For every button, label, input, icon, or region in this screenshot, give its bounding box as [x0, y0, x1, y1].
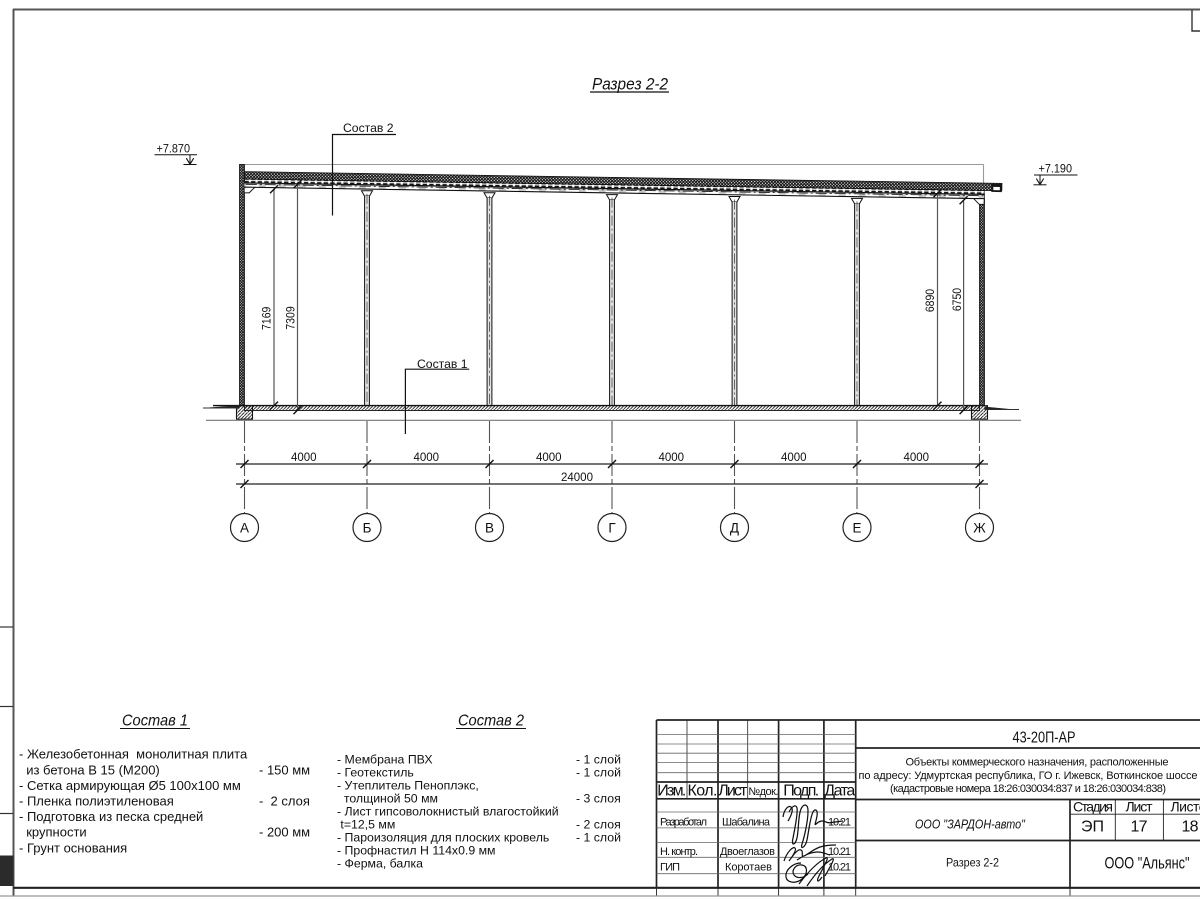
- svg-text:Е: Е: [852, 521, 861, 536]
- svg-text:крупности: крупности: [19, 825, 87, 840]
- svg-text:- Железобетонная монолитная п: - Железобетонная монолитная плита: [19, 747, 248, 762]
- svg-text:- Геотекстиль: - Геотекстиль: [337, 765, 414, 779]
- svg-text:Листов: Листов: [1171, 799, 1200, 815]
- svg-text:Состав 2: Состав 2: [458, 713, 524, 730]
- svg-text:(кадастровые номера 18:26:0300: (кадастровые номера 18:26:030034:837 и 1…: [890, 783, 1166, 795]
- svg-text:Г: Г: [608, 521, 616, 536]
- svg-text:- 150 мм: - 150 мм: [259, 762, 310, 777]
- svg-text:- 1 слой: - 1 слой: [576, 830, 621, 844]
- svg-text:+7.190: +7.190: [1039, 164, 1073, 176]
- svg-text:Стадия: Стадия: [1073, 799, 1113, 815]
- svg-text:Изм.: Изм.: [657, 783, 686, 800]
- svg-text:- Сетка армирующая Ø5 100х100: - Сетка армирующая Ø5 100х100 мм: [19, 778, 241, 793]
- svg-text:А: А: [240, 521, 249, 536]
- svg-text:ООО "ЗАРДОН-авто": ООО "ЗАРДОН-авто": [915, 817, 1026, 832]
- svg-text:- Пароизоляция для плоских кро: - Пароизоляция для плоских кровель: [337, 830, 549, 844]
- svg-text:- 1 слой: - 1 слой: [576, 765, 621, 779]
- svg-text:ООО "Альянс": ООО "Альянс": [1105, 855, 1190, 873]
- svg-text:- Подготовка из песка средней: - Подготовка из песка средней: [19, 809, 203, 824]
- svg-text:Б: Б: [363, 521, 372, 536]
- svg-text:Объекты коммерческого назначен: Объекты коммерческого назначения, распол…: [906, 757, 1169, 769]
- svg-text:Коротаев: Коротаев: [725, 862, 772, 874]
- svg-text:7309: 7309: [284, 306, 298, 330]
- svg-text:- 200 мм: - 200 мм: [259, 825, 310, 840]
- svg-text:24000: 24000: [561, 472, 593, 484]
- svg-text:Разработал: Разработал: [660, 817, 707, 829]
- svg-text:- Ферма, балка: - Ферма, балка: [337, 856, 423, 870]
- svg-text:6890: 6890: [923, 289, 937, 313]
- svg-text:6750: 6750: [950, 288, 964, 312]
- svg-text:- Мембрана ПВХ: - Мембрана ПВХ: [337, 752, 433, 766]
- svg-text:ГИП: ГИП: [660, 862, 680, 874]
- svg-text:- 2 слоя: - 2 слоя: [259, 794, 310, 809]
- svg-text:10.21: 10.21: [828, 846, 851, 858]
- svg-text:+7.870: +7.870: [157, 144, 191, 156]
- svg-text:4000: 4000: [291, 452, 317, 464]
- svg-text:по адресу: Удмуртская республи: по адресу: Удмуртская республика, ГО г. …: [859, 770, 1198, 782]
- svg-text:18: 18: [1182, 819, 1199, 836]
- svg-text:4000: 4000: [781, 452, 807, 464]
- svg-text:- 1 слой: - 1 слой: [576, 752, 621, 766]
- svg-text:43-20П-АР: 43-20П-АР: [1013, 730, 1076, 747]
- svg-text:Ж: Ж: [973, 521, 986, 536]
- svg-text:Подп.: Подп.: [783, 783, 819, 800]
- svg-text:ЭП: ЭП: [1081, 819, 1104, 836]
- svg-text:из бетона В 15 (М200): из бетона В 15 (М200): [19, 762, 160, 777]
- svg-text:17: 17: [1131, 819, 1148, 836]
- svg-text:4000: 4000: [536, 452, 562, 464]
- svg-text:Разрез 2-2: Разрез 2-2: [946, 856, 999, 870]
- svg-text:Д: Д: [730, 521, 739, 536]
- svg-text:- Пленка полиэтиленовая: - Пленка полиэтиленовая: [19, 794, 174, 809]
- svg-text:4000: 4000: [904, 452, 930, 464]
- svg-text:Двоеглазов: Двоеглазов: [720, 846, 775, 858]
- svg-text:Шабалина: Шабалина: [722, 817, 771, 829]
- svg-text:В: В: [485, 521, 494, 536]
- svg-text:- Профнастил Н 114х0.9 мм: - Профнастил Н 114х0.9 мм: [337, 843, 495, 857]
- svg-text:Кол.: Кол.: [688, 783, 718, 800]
- svg-text:толщиной 50 мм: толщиной 50 мм: [337, 791, 438, 805]
- svg-text:Дата: Дата: [824, 783, 855, 800]
- svg-text:- Утеплитель Пеноплэкс,: - Утеплитель Пеноплэкс,: [337, 778, 479, 792]
- svg-text:Лист: Лист: [718, 783, 748, 800]
- svg-text:№док.: №док.: [748, 786, 778, 798]
- svg-text:- 3 слоя: - 3 слоя: [576, 791, 621, 805]
- svg-text:4000: 4000: [414, 452, 440, 464]
- svg-text:Лист: Лист: [1126, 799, 1154, 815]
- svg-text:- Лист гипсоволокнистый влагос: - Лист гипсоволокнистый влагостойкий: [337, 804, 559, 818]
- svg-text:Состав 2: Состав 2: [343, 121, 394, 135]
- svg-text:4000: 4000: [659, 452, 685, 464]
- svg-text:Н. контр.: Н. контр.: [660, 846, 698, 858]
- svg-text:- 2 слоя: - 2 слоя: [576, 817, 621, 831]
- svg-text:Состав 1: Состав 1: [122, 713, 188, 730]
- svg-text:- Грунт основания: - Грунт основания: [19, 840, 127, 855]
- svg-text:7169: 7169: [259, 306, 273, 330]
- svg-text:t=12,5 мм: t=12,5 мм: [337, 817, 395, 831]
- svg-text:Разрез 2-2: Разрез 2-2: [592, 76, 668, 94]
